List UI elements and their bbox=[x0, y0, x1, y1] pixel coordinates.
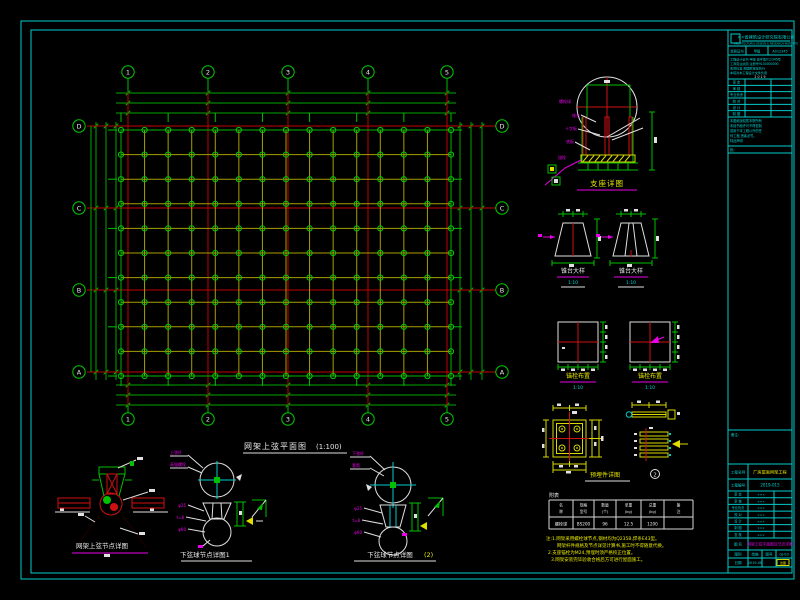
member-text-mark bbox=[251, 270, 253, 272]
diag-dot bbox=[203, 215, 204, 216]
diag-dot bbox=[292, 210, 293, 211]
member-text-mark bbox=[317, 265, 319, 267]
dim-label: t=8 bbox=[177, 515, 185, 520]
member-text-mark bbox=[181, 239, 183, 241]
member-text-mark bbox=[269, 189, 271, 191]
cone-elevation bbox=[203, 503, 231, 519]
member-text-mark bbox=[271, 246, 273, 248]
diag-dot bbox=[150, 358, 151, 359]
diag-dot bbox=[132, 265, 133, 266]
node-ball bbox=[100, 493, 122, 515]
diag-dot bbox=[156, 191, 157, 192]
detail-title: 下弦球节点详图 bbox=[367, 550, 413, 559]
diag-dot bbox=[257, 271, 258, 272]
diag-dot bbox=[280, 321, 281, 322]
diag-dot bbox=[179, 363, 180, 364]
diag-dot bbox=[226, 191, 227, 192]
diag-dot bbox=[221, 136, 222, 137]
member-text-mark bbox=[360, 266, 362, 268]
note-line: 2.支座锚栓为M24,预埋时须严格校正位置。 bbox=[548, 549, 635, 556]
table-cell: 螺栓球 bbox=[555, 521, 568, 528]
axis-bubble-bottom-label: 5 bbox=[445, 415, 449, 423]
member-text-mark bbox=[254, 150, 256, 152]
sign-row-value: ××× bbox=[757, 506, 765, 510]
diag-dot bbox=[150, 161, 151, 162]
diag-dot bbox=[363, 161, 364, 162]
member-text-mark bbox=[179, 216, 181, 218]
member-text-mark bbox=[148, 139, 150, 141]
diag-dot bbox=[415, 166, 416, 167]
diag-dot bbox=[422, 173, 423, 174]
diag-dot bbox=[274, 338, 275, 339]
diag-dot bbox=[292, 259, 293, 260]
diag-dot bbox=[226, 363, 227, 364]
diag-dot bbox=[162, 247, 163, 248]
diag-dot bbox=[351, 370, 352, 371]
diag-dot bbox=[221, 358, 222, 359]
diag-dot bbox=[226, 265, 227, 266]
diag-dot bbox=[321, 338, 322, 339]
sign-row-label: 专业负责 bbox=[732, 505, 745, 510]
cad-sheet: 1122334455DDCCBBAA 网架上弦平面图 (1:100) bbox=[0, 0, 800, 600]
diag-dot bbox=[203, 191, 204, 192]
detail-ball-a: 上弦杆 高强螺栓 φ25 t=8 φ60 下弦球节点详图1 bbox=[170, 449, 266, 561]
member-text-mark bbox=[275, 315, 277, 317]
member-text-mark bbox=[369, 221, 371, 223]
axis-bubble-top-label: 5 bbox=[445, 68, 449, 76]
diag-dot bbox=[179, 166, 180, 167]
detail-title: 锚栓布置 bbox=[566, 372, 590, 380]
mark bbox=[113, 300, 116, 305]
diag-dot bbox=[257, 198, 258, 199]
diag-dot bbox=[321, 314, 322, 315]
diag-dot bbox=[391, 166, 392, 167]
statement-line: 本图纸版权属本院所有 bbox=[730, 118, 762, 123]
diag-dot bbox=[179, 215, 180, 216]
member-text-mark bbox=[390, 356, 392, 358]
date-value: 2019.06 bbox=[748, 561, 762, 565]
member-text-mark bbox=[373, 136, 375, 138]
sign-row-label: 校 对 bbox=[734, 512, 742, 517]
diag-dot bbox=[245, 259, 246, 260]
cert-line: 收费标准 按国家规定执行 bbox=[730, 66, 765, 71]
diag-dot bbox=[339, 185, 340, 186]
diag-dot bbox=[162, 370, 163, 371]
member-text-mark bbox=[297, 186, 299, 188]
diag-dot bbox=[245, 210, 246, 211]
diag-dot bbox=[174, 308, 175, 309]
diag-dot bbox=[422, 370, 423, 371]
class-label: 图别 bbox=[735, 552, 743, 557]
diag-dot bbox=[363, 136, 364, 137]
diag-dot bbox=[198, 284, 199, 285]
diag-dot bbox=[156, 314, 157, 315]
mark bbox=[168, 100, 173, 103]
mark bbox=[462, 330, 465, 335]
diag-dot bbox=[274, 265, 275, 266]
mark bbox=[378, 110, 382, 113]
detail-ball-b: 下弦杆 套筒 φ25 t=8 φ60 下弦球节点详图 (2) bbox=[350, 450, 443, 561]
diag-dot bbox=[198, 136, 199, 137]
mark bbox=[284, 110, 288, 113]
diag-dot bbox=[274, 191, 275, 192]
diag-dot bbox=[179, 240, 180, 241]
member-text-mark bbox=[247, 191, 249, 193]
table-grid: 名称螺栓球规格型号BS200数量(个)96单重(kg)12.5总重(kg)120… bbox=[549, 500, 693, 529]
mark bbox=[328, 392, 333, 395]
member-text-mark bbox=[364, 281, 366, 283]
diag-dot bbox=[162, 173, 163, 174]
diag-dot bbox=[386, 235, 387, 236]
member-text-mark bbox=[252, 236, 254, 238]
table-header: 备 bbox=[677, 503, 681, 508]
detail-anchor bbox=[626, 401, 688, 462]
diag-dot bbox=[221, 235, 222, 236]
plate-dims bbox=[558, 322, 606, 370]
detail-title: 下弦球节点详图1 bbox=[180, 550, 230, 559]
member-text-mark bbox=[149, 272, 151, 274]
company-name-en: ARCHITECTURAL DESIGN & RESEARCH INSTITUT… bbox=[734, 42, 798, 46]
member-text-mark bbox=[199, 216, 201, 218]
diag-dot bbox=[391, 240, 392, 241]
detail-baseplate: 预埋件详图 2 bbox=[542, 404, 660, 482]
diag-dot bbox=[268, 210, 269, 211]
mark bbox=[237, 382, 241, 385]
member-text-mark bbox=[421, 169, 423, 171]
axis-bubble-right-label: A bbox=[500, 368, 505, 376]
diag-dot bbox=[297, 142, 298, 143]
diag-dot bbox=[280, 198, 281, 199]
diag-dot bbox=[203, 338, 204, 339]
member-text-mark bbox=[408, 266, 410, 268]
approve-row-label: 审 核 bbox=[733, 86, 741, 91]
diag-dot bbox=[297, 363, 298, 364]
support-label: 螺栓球 bbox=[559, 98, 571, 104]
member-text-mark bbox=[412, 313, 414, 315]
ball-label: 套筒 bbox=[352, 462, 360, 468]
member-text-mark bbox=[225, 273, 227, 275]
diag-dot bbox=[292, 308, 293, 309]
diag-dot bbox=[422, 321, 423, 322]
diag-dot bbox=[344, 191, 345, 192]
member-text-mark bbox=[136, 354, 138, 356]
diag-dot bbox=[150, 333, 151, 334]
diag-dot bbox=[156, 338, 157, 339]
diag-dot bbox=[250, 363, 251, 364]
mark bbox=[473, 253, 476, 258]
cert-cell: 甲级 bbox=[754, 49, 761, 54]
diag-dot bbox=[391, 191, 392, 192]
yellow-arrow bbox=[420, 522, 427, 530]
anchor-bars bbox=[634, 427, 671, 461]
approve-row-label: 设 计 bbox=[733, 105, 741, 110]
axis-bubble-top-label: 1 bbox=[126, 68, 130, 76]
axis-bubble-left-label: D bbox=[76, 122, 81, 130]
detail-title: 锥台大样 bbox=[619, 267, 643, 275]
member-text-mark bbox=[420, 143, 422, 145]
diag-dot bbox=[344, 240, 345, 241]
mark bbox=[331, 110, 335, 113]
detail-cone-a: 锥台大样 1:10 bbox=[538, 209, 601, 287]
member-text-mark bbox=[344, 187, 346, 189]
sign-row-value: ××× bbox=[757, 520, 765, 524]
diag-dot bbox=[297, 215, 298, 216]
diag-dot bbox=[439, 265, 440, 266]
member-text-mark bbox=[253, 174, 255, 176]
diag-dot bbox=[391, 314, 392, 315]
member-text-mark bbox=[161, 341, 163, 343]
diag-dot bbox=[203, 363, 204, 364]
diag-dot bbox=[186, 173, 187, 174]
member-text-mark bbox=[198, 270, 200, 272]
diag-dot bbox=[226, 215, 227, 216]
diag-dot bbox=[415, 191, 416, 192]
cert-line: 工程设计证书 甲级 建字第012345号 bbox=[730, 57, 781, 62]
class-value: 结施 bbox=[752, 552, 760, 557]
project-name: 厂房屋面网架工程 bbox=[753, 469, 787, 476]
diag-dot bbox=[439, 363, 440, 364]
diag-dot bbox=[233, 271, 234, 272]
diag-dot bbox=[268, 185, 269, 186]
ball-label: 上弦杆 bbox=[170, 449, 182, 455]
mark bbox=[457, 251, 460, 256]
diag-dot bbox=[250, 215, 251, 216]
diag-dot bbox=[174, 333, 175, 334]
diag-dot bbox=[398, 345, 399, 346]
member-text-mark bbox=[350, 357, 352, 359]
diag-dot bbox=[280, 173, 281, 174]
diag-dot bbox=[186, 321, 187, 322]
diag-dot bbox=[209, 296, 210, 297]
member-text-mark bbox=[338, 140, 340, 142]
member-text-mark bbox=[149, 312, 151, 314]
detail-plate-b: 锚栓布置 1:10 bbox=[630, 322, 680, 391]
member-text-mark bbox=[275, 332, 277, 334]
diag-dot bbox=[304, 271, 305, 272]
diag-dot bbox=[226, 142, 227, 143]
project-no-label: 工程编号 bbox=[731, 483, 746, 488]
diag-dot bbox=[203, 166, 204, 167]
diag-dot bbox=[292, 136, 293, 137]
member-text-mark bbox=[374, 285, 376, 287]
diag-dot bbox=[209, 148, 210, 149]
member-text-mark bbox=[275, 293, 277, 295]
diag-dot bbox=[233, 247, 234, 248]
axis-bubble-top-label: 4 bbox=[366, 68, 370, 76]
member-text-mark bbox=[136, 333, 138, 335]
diag-dot bbox=[250, 240, 251, 241]
diag-dot bbox=[410, 161, 411, 162]
mark bbox=[102, 330, 105, 335]
mark bbox=[473, 336, 476, 341]
project-no: 2019-015 bbox=[760, 483, 780, 488]
diag-dot bbox=[374, 222, 375, 223]
diag-dot bbox=[186, 222, 187, 223]
diag-dot bbox=[351, 148, 352, 149]
diag-dot bbox=[139, 271, 140, 272]
diag-dot bbox=[297, 314, 298, 315]
mark bbox=[425, 110, 429, 113]
member-text-mark bbox=[298, 175, 300, 177]
diag-dot bbox=[445, 345, 446, 346]
diag-dot bbox=[139, 370, 140, 371]
axis-bubble-top-label: 3 bbox=[286, 68, 290, 76]
table-label: 附表 bbox=[549, 492, 559, 499]
diag-dot bbox=[203, 265, 204, 266]
support-label: 底板 bbox=[566, 138, 574, 144]
dim-label: φ60 bbox=[178, 527, 186, 532]
mark bbox=[237, 110, 241, 113]
member-text-mark bbox=[224, 194, 226, 196]
mark bbox=[143, 382, 147, 385]
diag-dot bbox=[304, 345, 305, 346]
note-label: 批: bbox=[730, 147, 735, 152]
diag-dot bbox=[415, 240, 416, 241]
dim-label: t=8 bbox=[353, 518, 361, 523]
plan-scale: (1:100) bbox=[316, 443, 342, 451]
table-header: 名 bbox=[559, 503, 563, 508]
detail-title: 锥台大样 bbox=[561, 267, 585, 275]
dim-label: φ25 bbox=[354, 506, 362, 511]
member-text-mark bbox=[153, 200, 155, 202]
diag-dot bbox=[274, 363, 275, 364]
diag-dot bbox=[344, 166, 345, 167]
member-text-mark bbox=[219, 298, 221, 300]
diag-dot bbox=[250, 142, 251, 143]
diag-dot bbox=[433, 259, 434, 260]
mark bbox=[284, 382, 288, 385]
diag-dot bbox=[439, 166, 440, 167]
diag-dot bbox=[439, 142, 440, 143]
table-header: 数量 bbox=[601, 503, 609, 508]
date-label: 日期 bbox=[735, 560, 743, 565]
diag-dot bbox=[268, 284, 269, 285]
member-text-mark bbox=[394, 264, 396, 266]
member-text-mark bbox=[197, 183, 199, 185]
baseplate-hatch bbox=[581, 155, 635, 162]
member-text-mark bbox=[344, 248, 346, 250]
member-text-mark bbox=[162, 334, 164, 336]
diag-dot bbox=[363, 210, 364, 211]
diag-dot bbox=[221, 284, 222, 285]
detail-title: 预埋件详图 bbox=[590, 471, 620, 479]
diag-dot bbox=[132, 314, 133, 315]
axis-bubble-bottom-label: 1 bbox=[126, 415, 130, 423]
mark bbox=[168, 392, 173, 395]
plan-caption: 网架上弦平面图 (1:100) bbox=[243, 441, 347, 453]
mark bbox=[248, 100, 253, 103]
sign-row-value: ××× bbox=[757, 526, 765, 530]
detail-badge: 2 bbox=[653, 473, 657, 479]
diag-dot bbox=[179, 191, 180, 192]
diag-dot bbox=[321, 215, 322, 216]
member-text-mark bbox=[438, 296, 440, 298]
diag-dot bbox=[174, 161, 175, 162]
diag-dot bbox=[433, 235, 434, 236]
sheet-label: 图号 bbox=[766, 552, 774, 557]
member-text-mark bbox=[224, 164, 226, 166]
statement-line: 未经书面许可不得复制 bbox=[730, 123, 762, 128]
mark bbox=[113, 152, 116, 157]
dim-label: φ60 bbox=[354, 530, 362, 535]
member-text-mark bbox=[433, 268, 435, 270]
member-text-mark bbox=[444, 335, 446, 337]
member-text-mark bbox=[322, 287, 324, 289]
dim-text-mark bbox=[654, 137, 657, 143]
mark bbox=[331, 382, 335, 385]
diag-dot bbox=[233, 321, 234, 322]
title-block: ××省建筑设计研究院有限公司 ARCHITECTURAL DESIGN & RE… bbox=[728, 34, 798, 568]
sign-row-label: 复 核 bbox=[734, 532, 742, 537]
axis-bubble-left-label: A bbox=[77, 368, 82, 376]
sign-row-label: 制 图 bbox=[734, 525, 741, 530]
diag-dot bbox=[321, 166, 322, 167]
diag-dot bbox=[250, 314, 251, 315]
diag-dot bbox=[268, 161, 269, 162]
diag-dot bbox=[339, 358, 340, 359]
diag-dot bbox=[410, 308, 411, 309]
cone-elevation bbox=[380, 505, 406, 527]
sign-row-value: ××× bbox=[757, 499, 765, 503]
detail-node: 网架上弦节点详图 bbox=[55, 457, 168, 557]
support-label: 十字板 bbox=[565, 125, 577, 131]
diag-dot bbox=[344, 215, 345, 216]
diag-dot bbox=[374, 148, 375, 149]
diag-dot bbox=[280, 222, 281, 223]
diag-dot bbox=[179, 265, 180, 266]
member-text-mark bbox=[431, 268, 433, 270]
drawing-title-label: 图 名 bbox=[734, 542, 742, 547]
mark bbox=[378, 382, 382, 385]
mark bbox=[113, 202, 116, 207]
detail-cone-b: 锥台大样 1:10 bbox=[596, 209, 659, 287]
diag-dot bbox=[422, 247, 423, 248]
member-text-mark bbox=[372, 214, 374, 216]
diag-dot bbox=[250, 338, 251, 339]
mark bbox=[457, 349, 460, 354]
diag-dot bbox=[233, 148, 234, 149]
member-text-mark bbox=[362, 364, 364, 366]
diag-dot bbox=[198, 259, 199, 260]
diag-dot bbox=[274, 240, 275, 241]
cert-line: 工商营业执照 注册号9100000000 bbox=[730, 61, 779, 66]
diag-dot bbox=[233, 296, 234, 297]
diag-dot bbox=[203, 314, 204, 315]
diag-dot bbox=[297, 240, 298, 241]
approve-row-label: 校 对 bbox=[733, 99, 741, 104]
diag-dot bbox=[221, 210, 222, 211]
diag-dot bbox=[327, 247, 328, 248]
member-text-mark bbox=[320, 342, 322, 344]
diag-dot bbox=[233, 198, 234, 199]
member-text-mark bbox=[266, 139, 268, 141]
diag-dot bbox=[297, 338, 298, 339]
member-text-mark bbox=[151, 219, 153, 221]
diag-dot bbox=[250, 166, 251, 167]
member-text-mark bbox=[225, 214, 227, 216]
member-text-mark bbox=[414, 238, 416, 240]
diag-dot bbox=[321, 142, 322, 143]
member-text-mark bbox=[201, 192, 203, 194]
diag-dot bbox=[233, 370, 234, 371]
sign-row-value: ××× bbox=[757, 533, 765, 537]
member-text-mark bbox=[398, 242, 400, 244]
cert-cell: 资质证书 bbox=[730, 49, 744, 54]
diag-dot bbox=[274, 166, 275, 167]
axis-bubble-right-label: C bbox=[500, 204, 505, 212]
diag-dot bbox=[422, 148, 423, 149]
diag-dot bbox=[297, 166, 298, 167]
